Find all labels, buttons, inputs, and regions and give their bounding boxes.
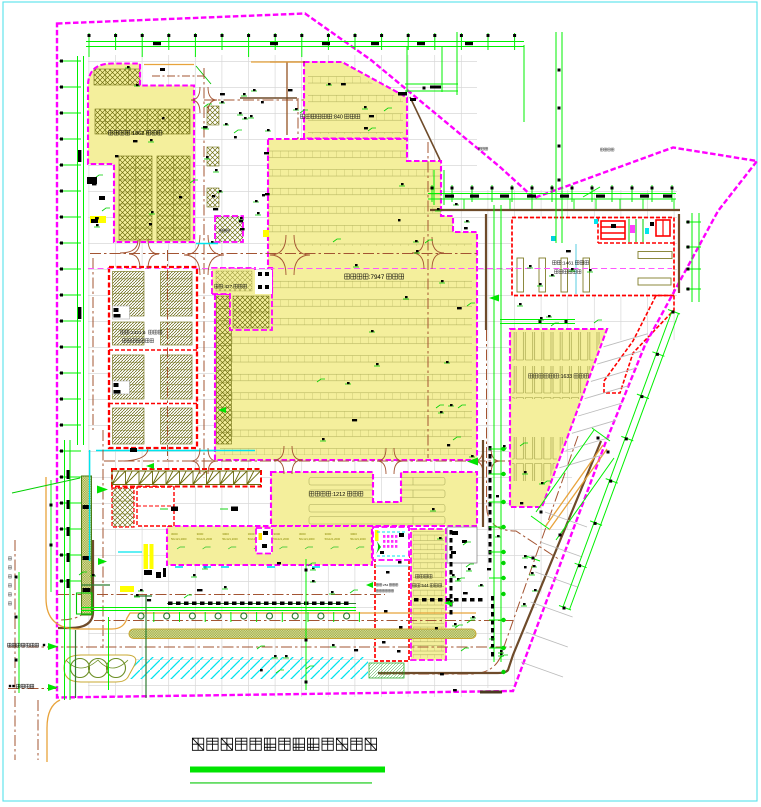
svg-text::427: :427 xyxy=(223,284,232,289)
svg-text:3000: 3000 xyxy=(299,532,306,536)
svg-text:3000: 3000 xyxy=(248,532,255,536)
svg-text:3000: 3000 xyxy=(171,532,178,536)
svg-text:50x121,2000: 50x121,2000 xyxy=(299,537,315,541)
svg-text:50x121,2000: 50x121,2000 xyxy=(171,537,187,541)
svg-text::1212: :1212 xyxy=(331,492,345,498)
svg-text::1862: :1862 xyxy=(130,131,144,137)
svg-text:50x121,2000: 50x121,2000 xyxy=(273,537,289,541)
svg-text:50x121,2000: 50x121,2000 xyxy=(222,537,238,541)
svg-text::7947: :7947 xyxy=(369,274,385,281)
svg-text:50x121,2000: 50x121,2000 xyxy=(325,537,341,541)
svg-text:3000: 3000 xyxy=(273,532,280,536)
svg-text::2421.6: :2421.6 xyxy=(130,330,146,336)
svg-text:3000: 3000 xyxy=(222,532,229,536)
svg-text:50x121,2000: 50x121,2000 xyxy=(197,537,213,541)
svg-text:3000: 3000 xyxy=(197,532,204,536)
svg-text:3000: 3000 xyxy=(325,532,332,536)
svg-text::840: :840 xyxy=(332,115,343,121)
svg-text::1633: :1633 xyxy=(559,374,572,380)
svg-text::254: :254 xyxy=(382,583,388,587)
svg-text::544: :544 xyxy=(420,583,429,588)
svg-text::1461: :1461 xyxy=(562,261,574,267)
svg-text:3000: 3000 xyxy=(350,532,357,536)
svg-text:50x121,2000: 50x121,2000 xyxy=(350,537,366,541)
